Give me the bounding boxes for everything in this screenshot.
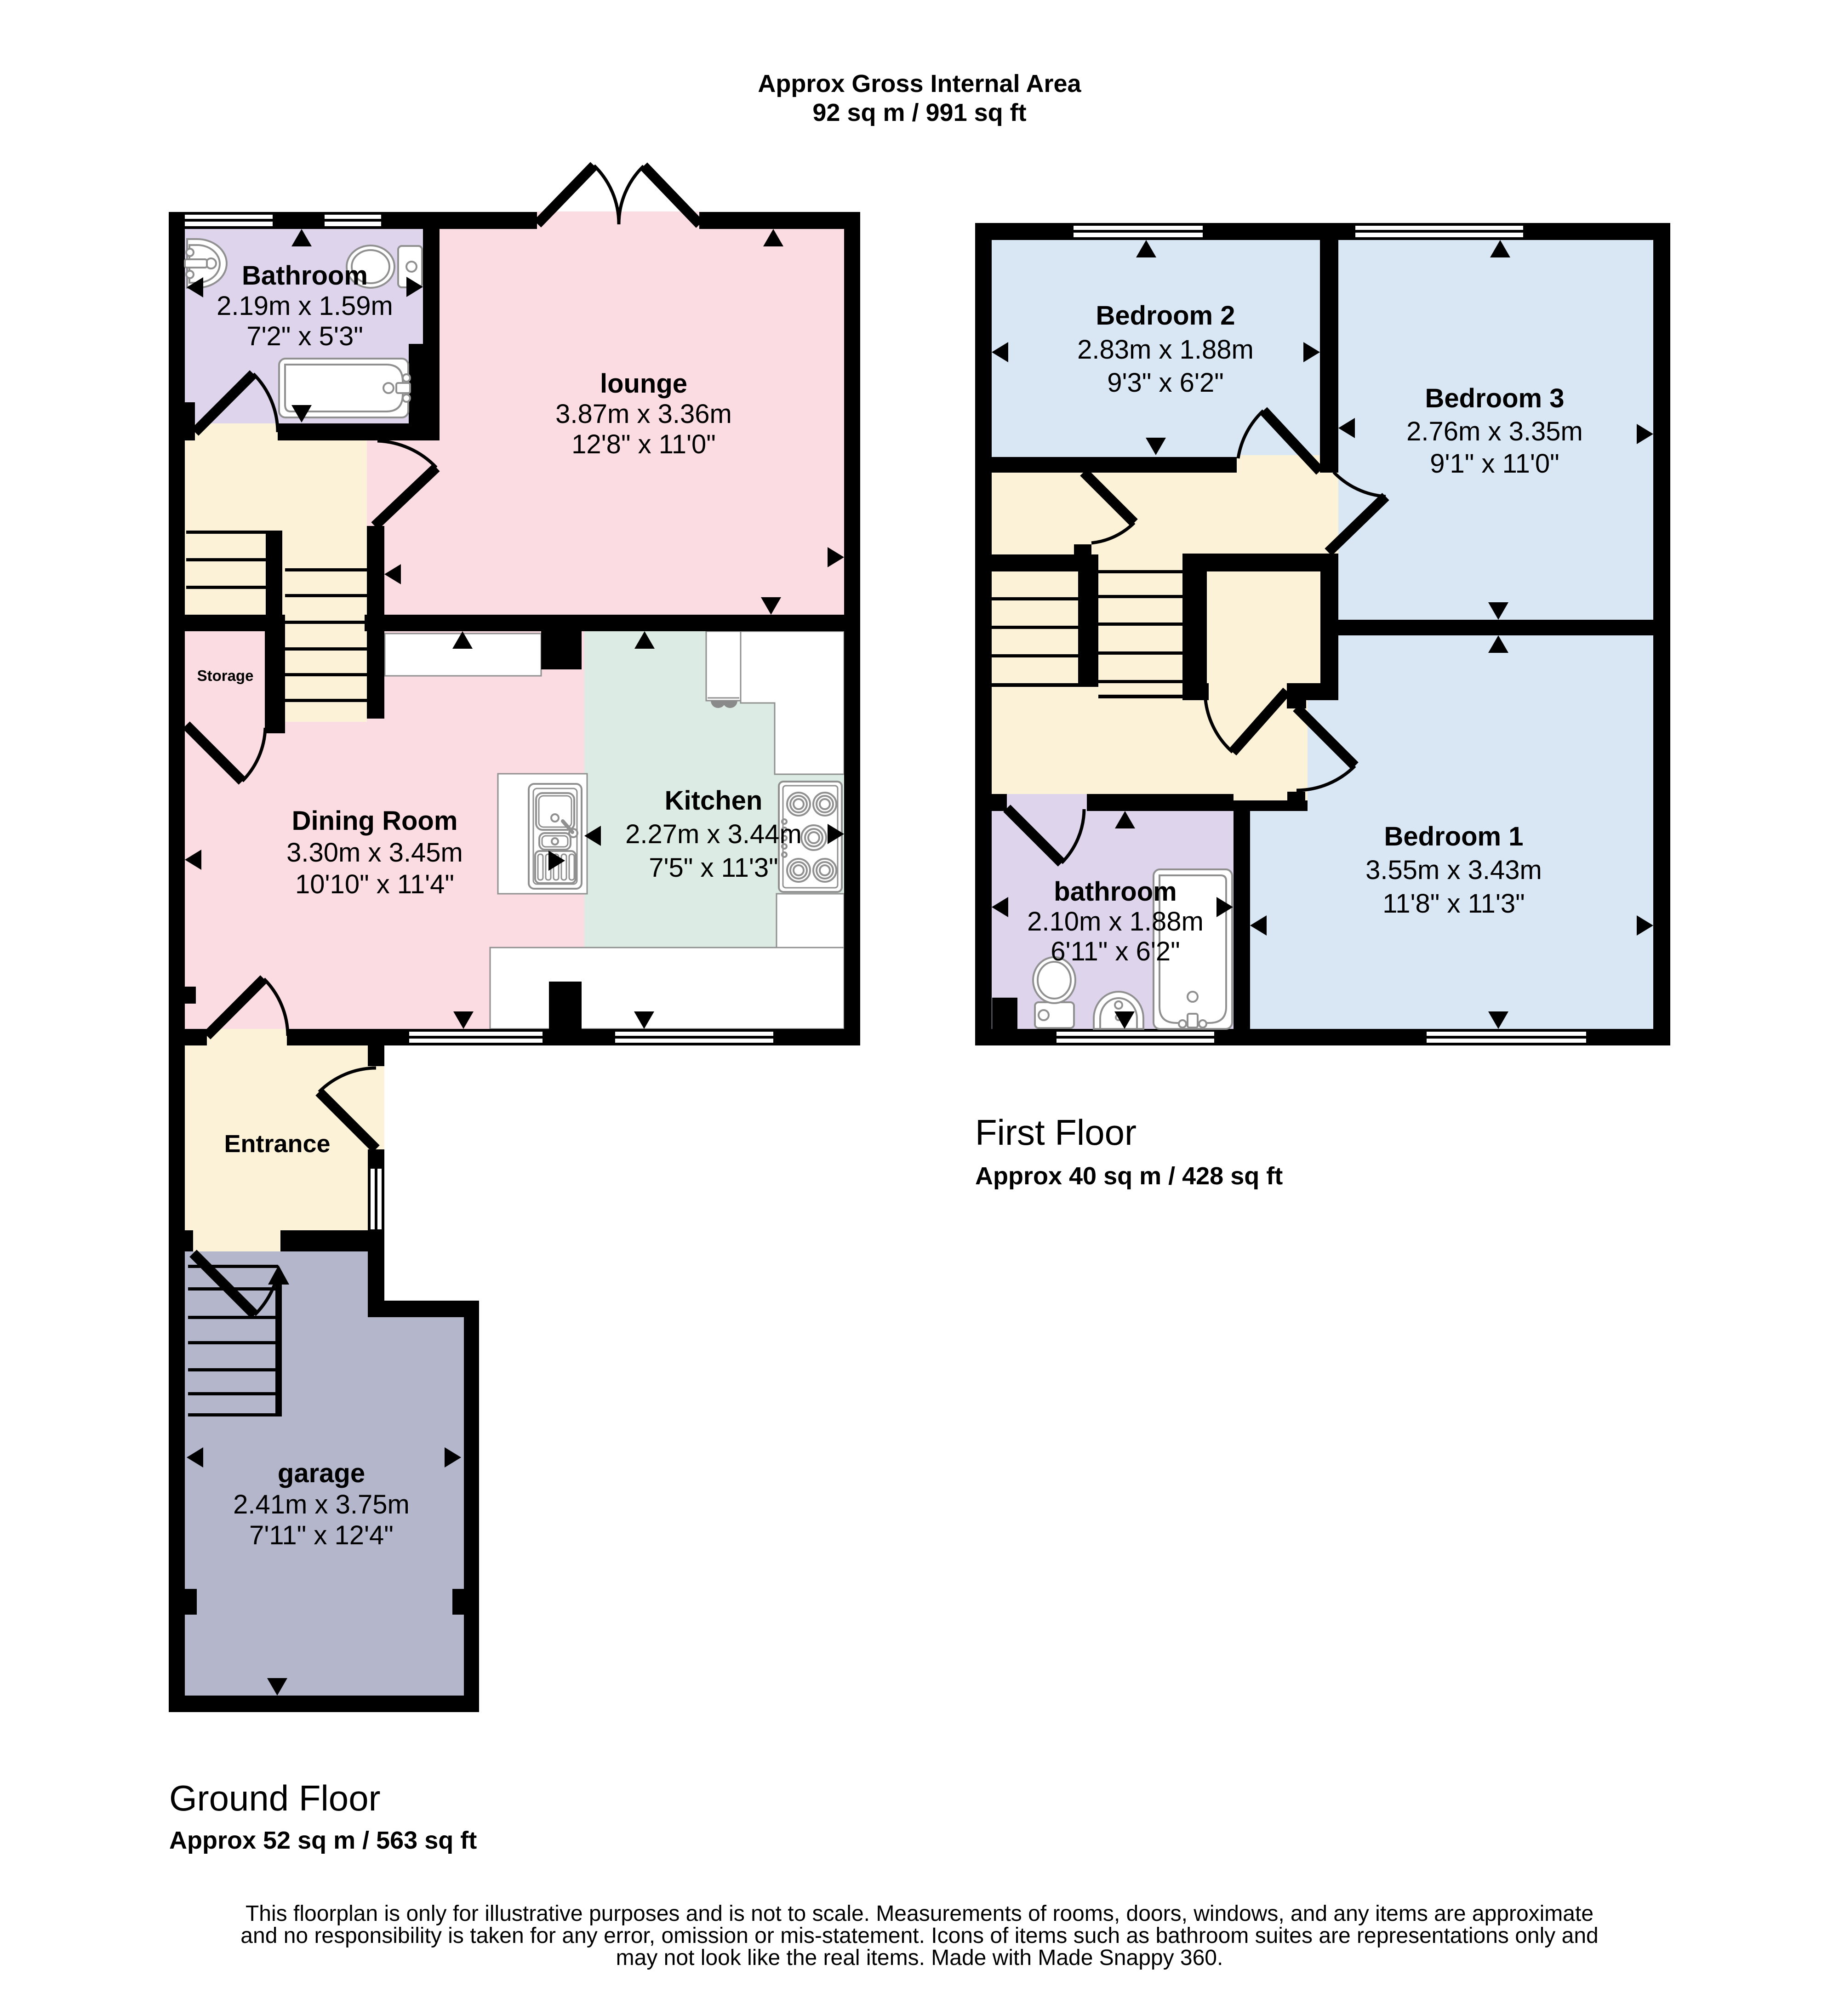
svg-text:3.30m x 3.45m: 3.30m x 3.45m bbox=[286, 838, 463, 868]
svg-text:11'8" x 11'3": 11'8" x 11'3" bbox=[1382, 889, 1525, 919]
svg-text:10'10" x 11'4": 10'10" x 11'4" bbox=[295, 869, 454, 899]
svg-text:Kitchen: Kitchen bbox=[665, 786, 763, 816]
svg-text:Storage: Storage bbox=[197, 667, 254, 684]
svg-text:92 sq m / 991 sq ft: 92 sq m / 991 sq ft bbox=[812, 99, 1026, 126]
svg-text:Entrance: Entrance bbox=[224, 1130, 330, 1158]
svg-text:7'5" x 11'3": 7'5" x 11'3" bbox=[649, 853, 778, 883]
svg-text:2.41m x 3.75m: 2.41m x 3.75m bbox=[233, 1490, 410, 1519]
svg-text:lounge: lounge bbox=[600, 369, 687, 399]
svg-text:9'1" x 11'0": 9'1" x 11'0" bbox=[1430, 449, 1559, 479]
svg-text:and no responsibility is taken: and no responsibility is taken for any e… bbox=[240, 1924, 1598, 1948]
svg-text:Approx Gross Internal Area: Approx Gross Internal Area bbox=[758, 70, 1081, 97]
svg-text:12'8" x 11'0": 12'8" x 11'0" bbox=[571, 429, 716, 459]
svg-text:2.83m x 1.88m: 2.83m x 1.88m bbox=[1077, 335, 1254, 365]
svg-text:bathroom: bathroom bbox=[1054, 877, 1177, 907]
svg-text:9'3" x 6'2": 9'3" x 6'2" bbox=[1107, 368, 1224, 398]
svg-text:7'2" x 5'3": 7'2" x 5'3" bbox=[246, 321, 363, 351]
svg-text:7'11" x 12'4": 7'11" x 12'4" bbox=[249, 1520, 394, 1550]
svg-text:Bedroom 3: Bedroom 3 bbox=[1425, 383, 1565, 413]
svg-text:Approx 40 sq m / 428 sq ft: Approx 40 sq m / 428 sq ft bbox=[975, 1162, 1283, 1190]
svg-text:Approx 52 sq m / 563 sq ft: Approx 52 sq m / 563 sq ft bbox=[169, 1827, 477, 1854]
svg-text:3.87m x 3.36m: 3.87m x 3.36m bbox=[555, 399, 732, 429]
svg-text:2.27m x 3.44m: 2.27m x 3.44m bbox=[625, 819, 802, 849]
svg-text:3.55m x 3.43m: 3.55m x 3.43m bbox=[1365, 855, 1542, 885]
svg-text:2.19m x 1.59m: 2.19m x 1.59m bbox=[217, 291, 393, 321]
svg-text:Bathroom: Bathroom bbox=[242, 261, 368, 291]
svg-text:Dining Room: Dining Room bbox=[292, 806, 458, 836]
svg-text:garage: garage bbox=[278, 1458, 365, 1488]
svg-text:First Floor: First Floor bbox=[975, 1112, 1137, 1153]
svg-text:2.10m x 1.88m: 2.10m x 1.88m bbox=[1027, 907, 1204, 937]
svg-text:may not look like the real ite: may not look like the real items. Made w… bbox=[616, 1946, 1223, 1970]
svg-text:This floorplan is only for ill: This floorplan is only for illustrative … bbox=[246, 1902, 1593, 1926]
svg-text:2.76m x 3.35m: 2.76m x 3.35m bbox=[1406, 417, 1583, 446]
svg-text:Bedroom 2: Bedroom 2 bbox=[1096, 301, 1235, 331]
svg-text:Ground Floor: Ground Floor bbox=[169, 1778, 381, 1818]
svg-text:Bedroom 1: Bedroom 1 bbox=[1384, 822, 1524, 851]
svg-text:6'11" x 6'2": 6'11" x 6'2" bbox=[1051, 937, 1180, 966]
